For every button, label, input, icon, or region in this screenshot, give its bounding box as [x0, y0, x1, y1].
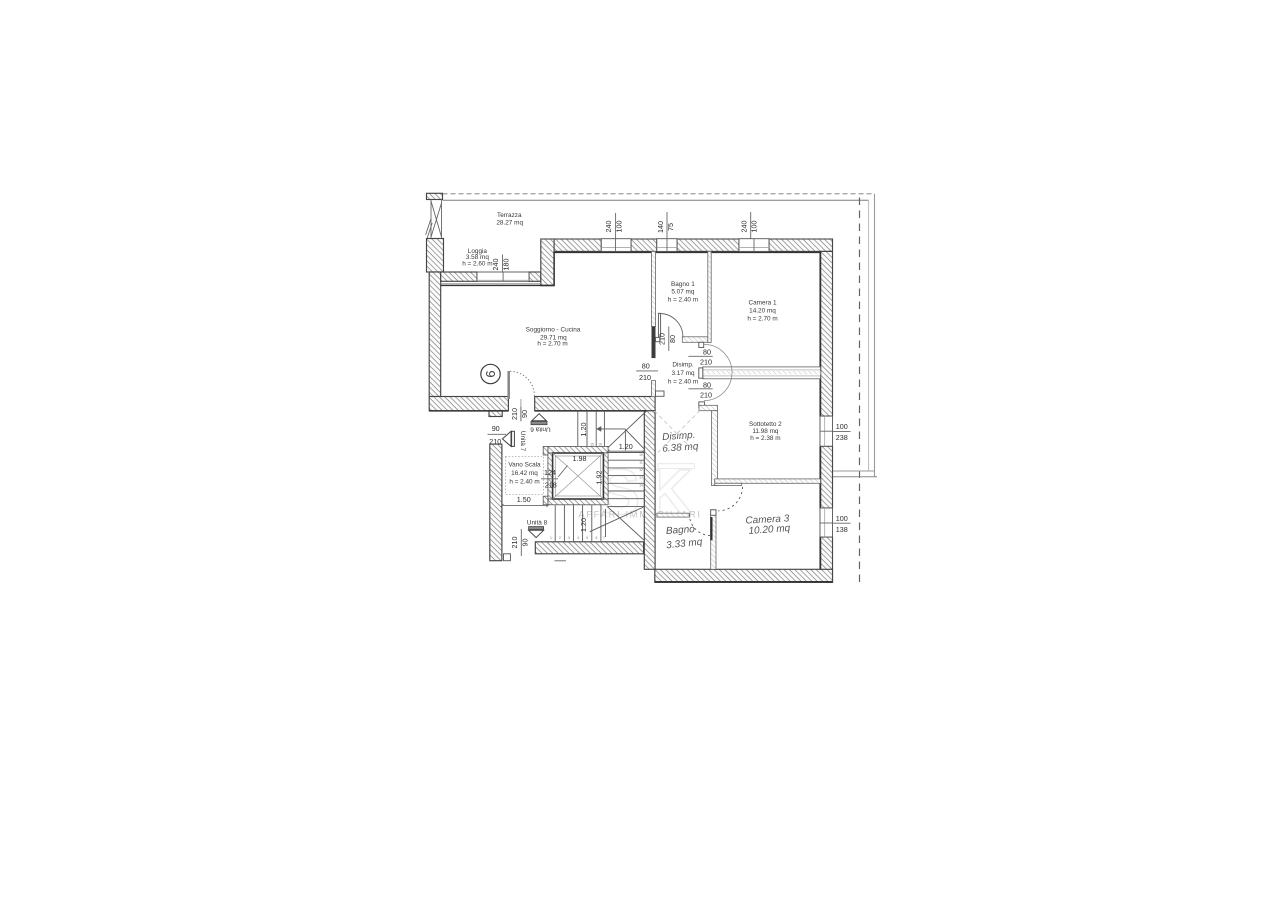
- svg-text:h = 2.60 m: h = 2.60 m: [462, 261, 492, 268]
- svg-text:Disimp.: Disimp.: [672, 362, 694, 369]
- svg-text:h = 2.40 m: h = 2.40 m: [509, 479, 539, 486]
- svg-text:Unità 8: Unità 8: [527, 519, 548, 526]
- svg-text:90: 90: [492, 424, 500, 433]
- svg-text:3: 3: [568, 536, 570, 540]
- svg-text:4: 4: [577, 536, 579, 540]
- svg-text:100: 100: [836, 422, 848, 431]
- svg-text:218: 218: [545, 481, 557, 490]
- svg-text:12: 12: [639, 468, 643, 472]
- svg-text:10: 10: [639, 453, 643, 457]
- svg-text:1.92: 1.92: [594, 471, 603, 485]
- svg-text:5.07 mq: 5.07 mq: [671, 289, 695, 296]
- svg-text:80: 80: [703, 347, 711, 356]
- svg-text:h = 2.70 m: h = 2.70 m: [537, 340, 567, 347]
- svg-text:238: 238: [836, 433, 848, 442]
- svg-text:140: 140: [656, 221, 665, 233]
- svg-text:180: 180: [502, 259, 511, 271]
- svg-text:124: 124: [544, 468, 556, 477]
- svg-text:15: 15: [590, 443, 594, 447]
- svg-text:2: 2: [559, 536, 561, 540]
- svg-text:Unità 6: Unità 6: [530, 425, 551, 432]
- svg-text:210: 210: [639, 373, 651, 382]
- svg-text:1.20: 1.20: [579, 518, 588, 532]
- svg-text:5: 5: [586, 536, 588, 540]
- svg-text:1.20: 1.20: [619, 442, 633, 451]
- svg-text:100: 100: [614, 221, 623, 233]
- svg-text:100: 100: [836, 514, 848, 523]
- svg-text:h = 2.40 m: h = 2.40 m: [668, 379, 698, 386]
- svg-text:1.20: 1.20: [579, 423, 588, 437]
- svg-text:Vano Scala: Vano Scala: [508, 462, 541, 469]
- svg-text:6.38 mq: 6.38 mq: [662, 441, 699, 455]
- svg-text:11: 11: [639, 461, 643, 465]
- svg-text:10.20 mq: 10.20 mq: [748, 523, 791, 537]
- svg-text:h = 2.40 m: h = 2.40 m: [668, 297, 698, 304]
- svg-text:7: 7: [603, 536, 605, 540]
- svg-text:14: 14: [639, 483, 643, 487]
- svg-text:Sottotetto 2: Sottotetto 2: [749, 421, 782, 428]
- svg-text:3.17 mq: 3.17 mq: [671, 370, 695, 377]
- svg-text:1.50: 1.50: [517, 495, 531, 504]
- svg-text:90: 90: [520, 539, 529, 547]
- svg-text:210: 210: [510, 537, 519, 549]
- svg-text:75: 75: [666, 223, 675, 231]
- svg-text:Camera 1: Camera 1: [748, 300, 777, 307]
- svg-text:210: 210: [658, 333, 667, 345]
- svg-text:6: 6: [483, 370, 498, 377]
- svg-text:Soggiorno - Cucina: Soggiorno - Cucina: [526, 326, 581, 333]
- svg-text:210: 210: [510, 408, 519, 420]
- svg-text:28.27 mq: 28.27 mq: [496, 220, 523, 227]
- svg-text:14.20 mq: 14.20 mq: [749, 308, 776, 315]
- svg-text:240: 240: [604, 221, 613, 233]
- svg-text:Terrazza: Terrazza: [497, 212, 522, 219]
- svg-text:80: 80: [668, 335, 677, 343]
- svg-text:1.98: 1.98: [573, 454, 587, 463]
- svg-text:80: 80: [703, 380, 711, 389]
- svg-text:6: 6: [595, 536, 597, 540]
- svg-text:90: 90: [520, 410, 529, 418]
- svg-text:210: 210: [700, 357, 712, 366]
- svg-text:Unità 7: Unità 7: [519, 431, 526, 452]
- svg-text:210: 210: [489, 437, 501, 446]
- svg-text:h = 2.70 m: h = 2.70 m: [747, 316, 777, 323]
- svg-text:1: 1: [550, 536, 552, 540]
- svg-text:3.33 mq: 3.33 mq: [666, 537, 704, 552]
- svg-text:16: 16: [598, 443, 602, 447]
- svg-text:Bagno: Bagno: [666, 524, 696, 537]
- svg-text:138: 138: [836, 525, 848, 534]
- svg-text:11.98 mq: 11.98 mq: [752, 428, 779, 435]
- svg-text:100: 100: [750, 221, 759, 233]
- svg-text:Bagno 1: Bagno 1: [671, 281, 695, 288]
- svg-text:80: 80: [642, 361, 650, 370]
- svg-text:240: 240: [739, 221, 748, 233]
- svg-text:13: 13: [639, 476, 643, 480]
- svg-text:210: 210: [700, 390, 712, 399]
- svg-text:h = 2.38 m: h = 2.38 m: [750, 435, 780, 442]
- svg-text:16.42 mq: 16.42 mq: [511, 470, 538, 477]
